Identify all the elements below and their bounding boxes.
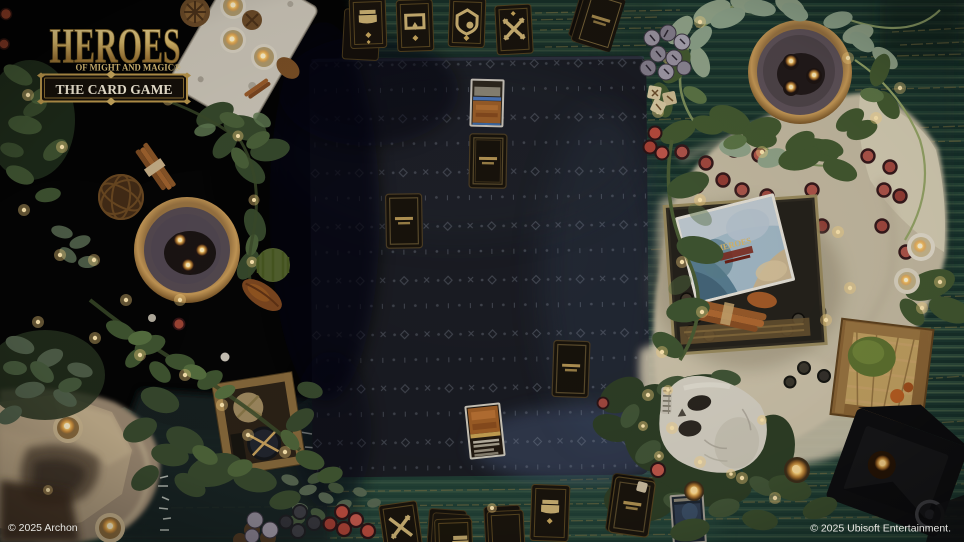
- svg-text:© 2025 Ubisoft Entertainment.: © 2025 Ubisoft Entertainment.: [810, 523, 951, 535]
- svg-text:© 2025 Archon: © 2025 Archon: [8, 522, 78, 534]
